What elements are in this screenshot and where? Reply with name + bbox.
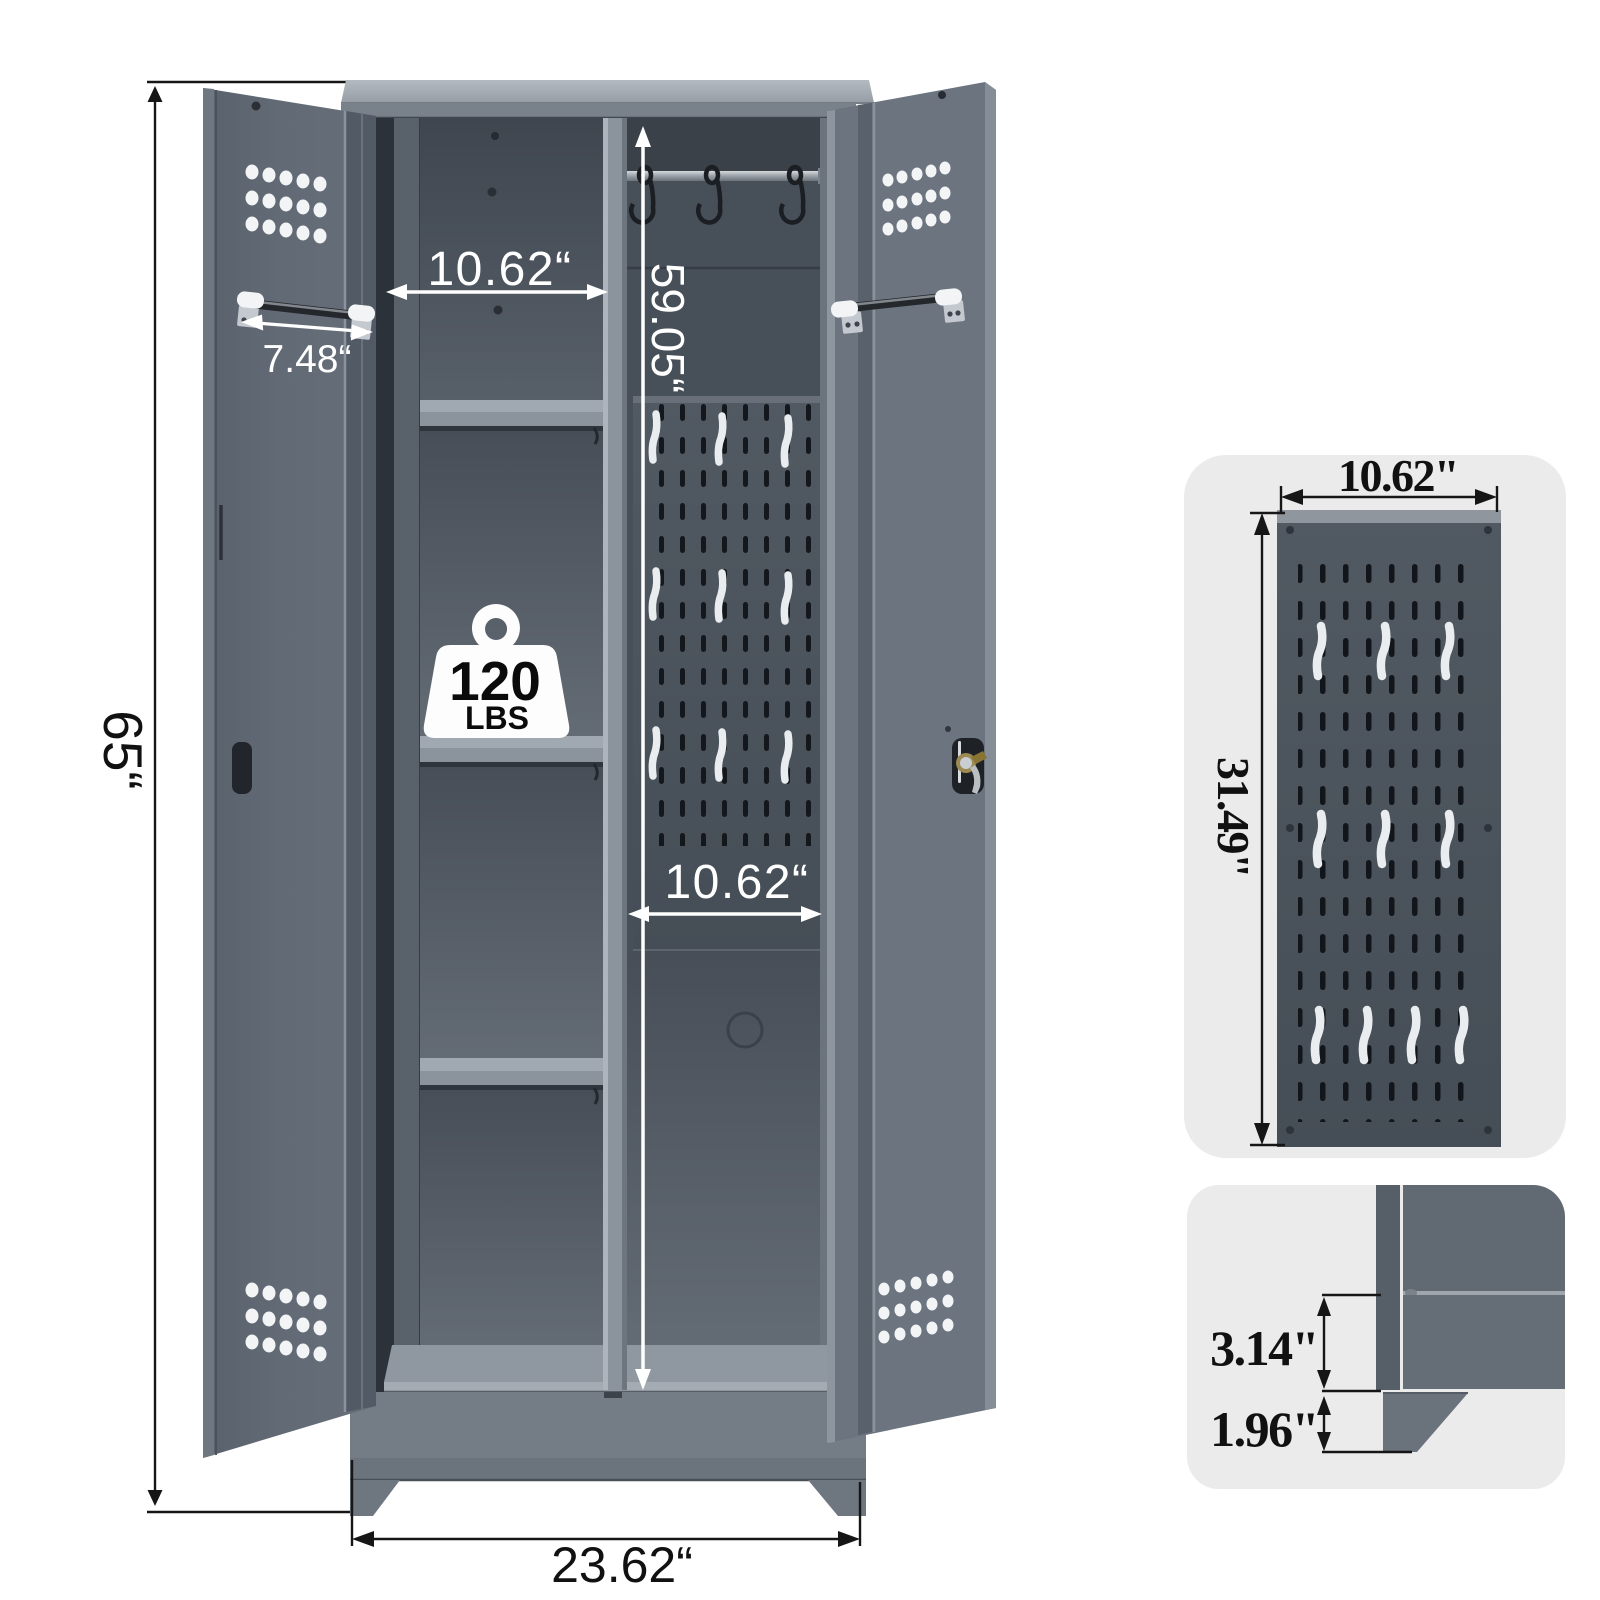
svg-text:3.14": 3.14" bbox=[1210, 1320, 1318, 1376]
svg-text:23.62“: 23.62“ bbox=[551, 1537, 693, 1593]
svg-text:7.48“: 7.48“ bbox=[263, 338, 352, 381]
svg-text:1.96": 1.96" bbox=[1210, 1401, 1318, 1457]
svg-text:31.49": 31.49" bbox=[1208, 757, 1259, 877]
svg-text:10.62": 10.62" bbox=[1338, 450, 1458, 501]
svg-text:10.62“: 10.62“ bbox=[427, 243, 572, 296]
svg-text:LBS: LBS bbox=[465, 700, 529, 736]
svg-text:10.62“: 10.62“ bbox=[664, 856, 809, 909]
svg-text:59.05“: 59.05“ bbox=[642, 263, 694, 393]
svg-text:65“: 65“ bbox=[92, 710, 154, 790]
